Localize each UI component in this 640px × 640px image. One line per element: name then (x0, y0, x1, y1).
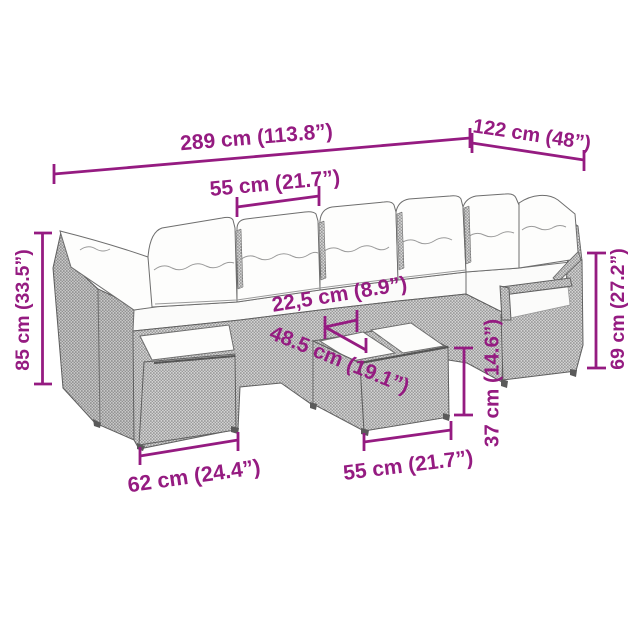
svg-text:289 cm (113.8”): 289 cm (113.8”) (179, 120, 333, 155)
svg-text:37 cm (14.6”): 37 cm (14.6”) (481, 319, 504, 447)
svg-text:69 cm (27.2”): 69 cm (27.2”) (607, 248, 629, 369)
svg-text:62 cm (24.4”): 62 cm (24.4”) (126, 455, 262, 497)
svg-text:122 cm (48”): 122 cm (48”) (471, 115, 592, 155)
svg-text:55 cm (21.7”): 55 cm (21.7”) (342, 446, 475, 485)
svg-text:85 cm (33.5”): 85 cm (33.5”) (12, 249, 34, 370)
svg-text:55 cm (21.7”): 55 cm (21.7”) (209, 166, 341, 201)
